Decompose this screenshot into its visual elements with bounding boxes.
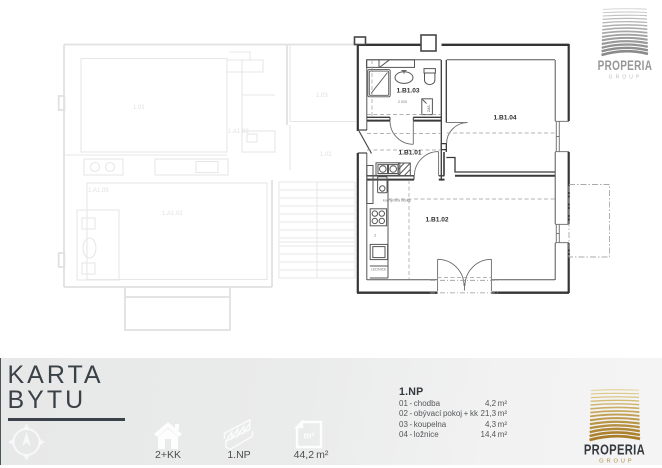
svg-text:1.B1.04: 1.B1.04 [494,115,517,122]
svg-text:1.01: 1.01 [133,105,145,111]
svg-text:ZAS.: ZAS. [427,104,431,112]
svg-text:kuchynska deska: kuchynska deska [383,199,411,203]
svg-text:3: 3 [374,234,376,238]
svg-text:1.B1.01: 1.B1.01 [399,150,422,157]
svg-text:1.03: 1.03 [316,93,328,99]
svg-text:2 020: 2 020 [398,100,407,104]
svg-text:1.A1.03: 1.A1.03 [228,129,249,135]
svg-text:1.A1.02: 1.A1.02 [162,211,183,217]
svg-text:1.02: 1.02 [320,152,332,158]
svg-text:LEDNICE: LEDNICE [371,268,387,272]
svg-text:1.B1.03: 1.B1.03 [397,88,420,95]
svg-text:m²: m² [304,431,315,441]
svg-text:1.A1.05: 1.A1.05 [88,188,109,194]
svg-text:1.B1.02: 1.B1.02 [426,217,449,224]
